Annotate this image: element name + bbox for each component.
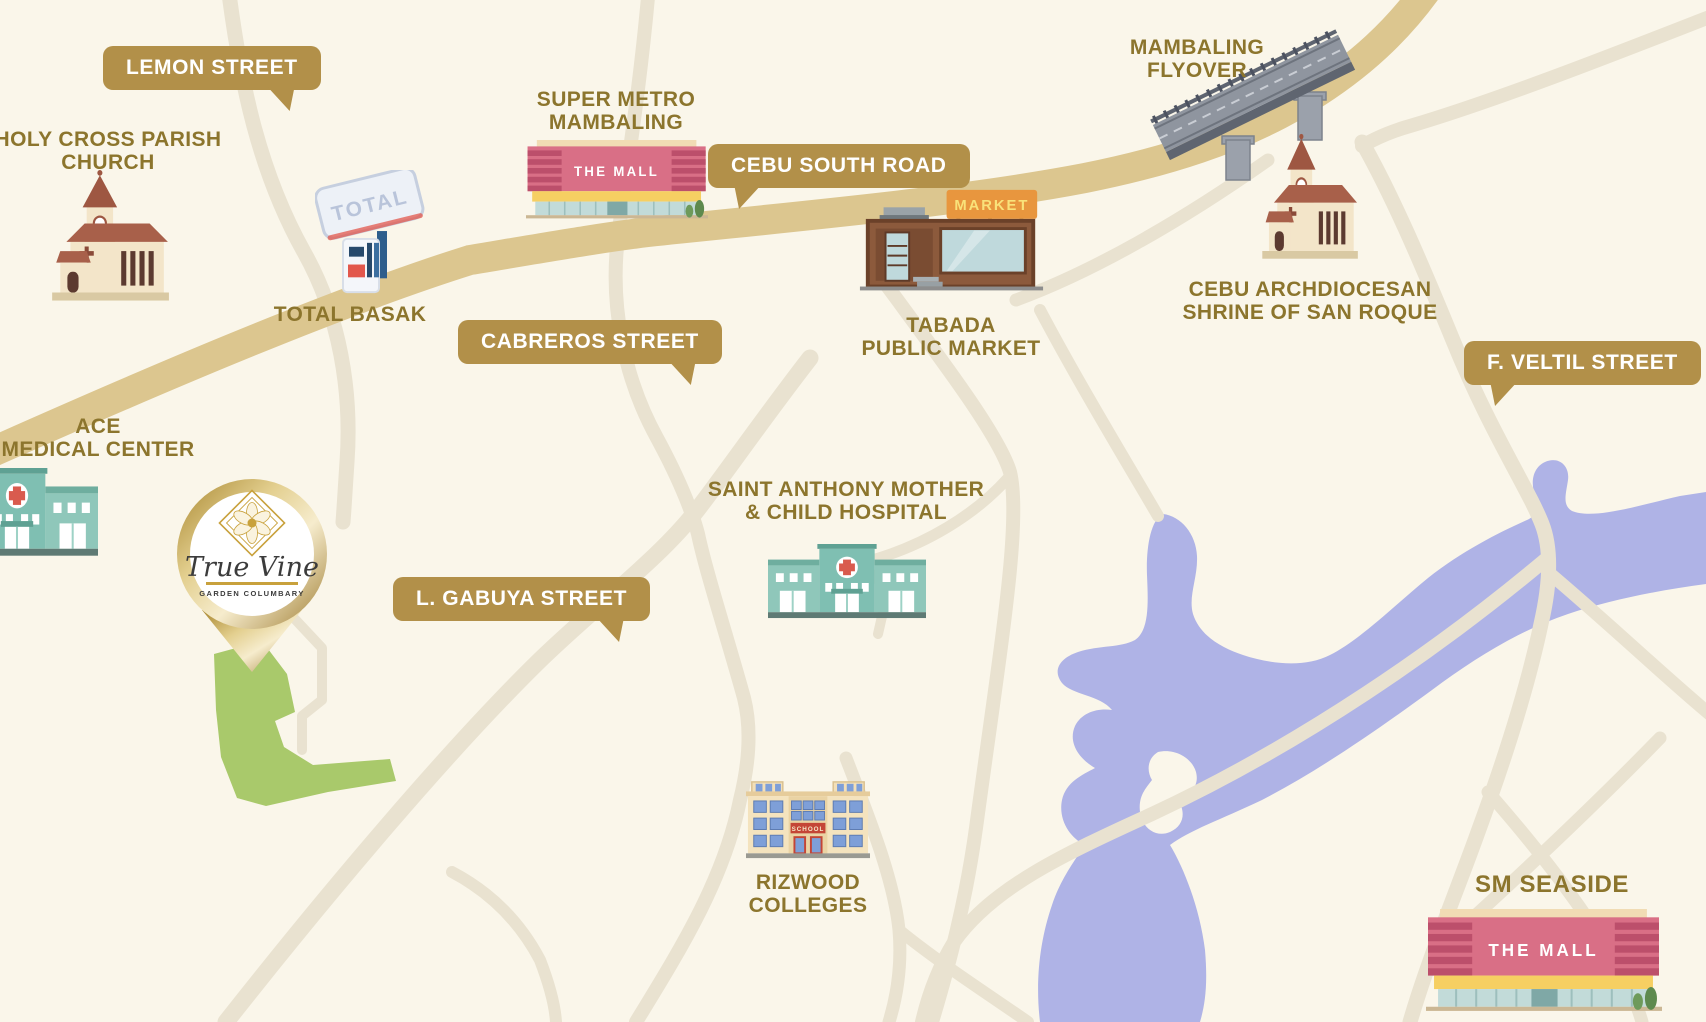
rizwood-colleges-icon [746,780,870,860]
label-line: MAMBALING [1130,36,1264,59]
vicinity-map: THE MALL MARKET [0,0,1706,1022]
label-saint-anthony-hospital: SAINT ANTHONY MOTHER & CHILD HOSPITAL [708,478,984,524]
pin-brand-text: True Vine [185,552,319,583]
label-line: ACE [1,415,194,438]
label-line: COLLEGES [749,894,868,917]
label-rizwood-colleges: RIZWOOD COLLEGES [749,871,868,917]
label-line: SUPER METRO [537,88,695,111]
label-ace-medical-center: ACE MEDICAL CENTER [1,415,194,461]
street-tag-label: F. VELTIL STREET [1487,351,1678,374]
label-line: CEBU ARCHDIOCESAN [1183,278,1438,301]
label-line: RIZWOOD [749,871,868,894]
street-tag-label: CABREROS STREET [481,330,699,353]
label-line: FLYOVER [1130,59,1264,82]
street-tag-label: L. GABUYA STREET [416,587,627,610]
street-tag-label: LEMON STREET [126,56,298,79]
label-cebu-archdiocesan-shrine: CEBU ARCHDIOCESAN SHRINE OF SAN ROQUE [1183,278,1438,324]
label-holy-cross-church: HOLY CROSS PARISH CHURCH [0,128,221,174]
label-line: CHURCH [0,151,221,174]
label-super-metro-mambaling: SUPER METRO MAMBALING [537,88,695,134]
saint-anthony-hospital-icon [768,544,926,620]
street-tag-label: CEBU SOUTH ROAD [731,154,947,177]
label-line: SM SEASIDE [1475,872,1629,898]
label-sm-seaside: SM SEASIDE [1475,872,1629,898]
total-gas-station-icon: TOTAL [315,170,430,298]
label-line: TABADA [861,314,1040,337]
true-vine-location-pin: True Vine GARDEN COLUMBARY [162,475,342,675]
street-tag-veltil: F. VELTIL STREET [1464,341,1701,385]
label-tabada-public-market: TABADA PUBLIC MARKET [861,314,1040,360]
label-line: PUBLIC MARKET [861,337,1040,360]
label-line: SAINT ANTHONY MOTHER [708,478,984,501]
label-mambaling-flyover: MAMBALING FLYOVER [1130,36,1264,82]
pin-rule [206,582,298,585]
street-tag-lemon: LEMON STREET [103,46,321,90]
super-metro-mall-icon [526,140,708,220]
ace-medical-center-icon [0,468,98,558]
street-tag-cabreros: CABREROS STREET [458,320,722,364]
pin-subtitle-text: GARDEN COLUMBARY [199,589,304,598]
label-line: MAMBALING [537,111,695,134]
label-total-basak: TOTAL BASAK [274,303,427,326]
tabada-market-icon [856,188,1048,302]
label-line: & CHILD HOSPITAL [708,501,984,524]
holy-cross-church-icon [42,166,174,304]
label-line: HOLY CROSS PARISH [0,128,221,151]
sm-seaside-mall-icon [1426,909,1662,1013]
label-line: SHRINE OF SAN ROQUE [1183,301,1438,324]
label-line: TOTAL BASAK [274,303,427,326]
san-roque-shrine-icon [1254,130,1362,262]
street-tag-cebu-south: CEBU SOUTH ROAD [708,144,970,188]
label-line: MEDICAL CENTER [1,438,194,461]
street-tag-gabuya: L. GABUYA STREET [393,577,650,621]
